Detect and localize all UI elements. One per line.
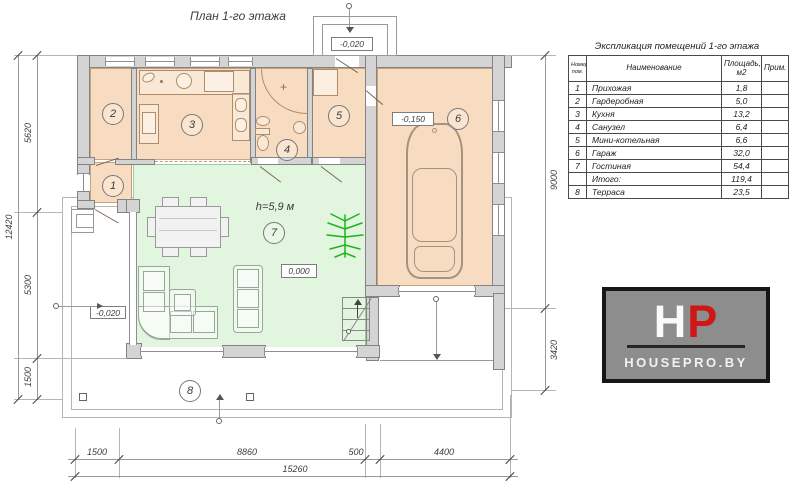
driveway-arrow-line (436, 300, 437, 355)
cell-area: 6,4 (722, 121, 762, 134)
dim-label: 8860 (187, 447, 307, 457)
cell-name: Терраса (587, 186, 722, 199)
room-number: 5 (336, 110, 342, 122)
cell-note (762, 186, 789, 199)
level-label-garage: -0,150 (392, 112, 434, 126)
armchair-seat (174, 294, 191, 311)
cell-name: Санузел (587, 121, 722, 134)
stairs-arrow-up (354, 299, 362, 305)
shower-drain-mark: + (280, 80, 287, 94)
dim-label: 1500 (23, 354, 33, 400)
dim-label: 1500 (75, 447, 119, 457)
col-header-area: Площадь, м2 (722, 56, 762, 82)
room-number: 8 (187, 385, 193, 397)
cell-name: Итого: (587, 173, 722, 186)
chair (162, 247, 179, 257)
room-circle-6: 6 (447, 108, 469, 130)
side-arrow-right (97, 303, 103, 309)
table-row: 3Кухня13,2 (569, 108, 789, 121)
stairs (342, 297, 370, 341)
cell-area: 23,5 (722, 186, 762, 199)
chair (147, 217, 156, 237)
extension-line (505, 55, 556, 56)
dim-line-left-total (18, 55, 19, 399)
wall-partition (131, 68, 137, 163)
kitchen-oven (142, 112, 156, 134)
window-wall (129, 212, 137, 345)
room-circle-5: 5 (328, 105, 350, 127)
dim-label: 3420 (549, 327, 559, 373)
room-number: 4 (284, 144, 290, 156)
cell-note (762, 121, 789, 134)
extension-line (119, 428, 120, 478)
chair (190, 197, 207, 207)
window (105, 57, 135, 66)
wall-segment (77, 157, 95, 165)
window-wall (140, 347, 224, 356)
cell-area: 54,4 (722, 160, 762, 173)
cell-num: 7 (569, 160, 587, 173)
room-circle-1: 1 (102, 175, 124, 197)
table-row-total: Итого:119,4 (569, 173, 789, 186)
table-grain (159, 230, 217, 231)
cell-num: 4 (569, 121, 587, 134)
room-number: 2 (110, 108, 116, 120)
car-rear-window (414, 246, 455, 272)
wall-segment (77, 200, 95, 209)
room-number: 6 (455, 113, 461, 125)
toilet-tank (255, 128, 270, 135)
cell-name: Гардеробная (587, 95, 722, 108)
dim-label-total: 15260 (250, 464, 340, 474)
cell-name: Гостиная (587, 160, 722, 173)
garage-gate (398, 287, 476, 295)
table-row: 6Гараж32,0 (569, 147, 789, 160)
extension-line (505, 308, 556, 309)
sofa-cushion (143, 292, 165, 312)
table-title: Экспликация помещений 1-го этажа (560, 42, 794, 52)
room-circle-8: 8 (179, 380, 201, 402)
room-circle-7: 7 (263, 222, 285, 244)
car-cabin (412, 168, 457, 242)
dim-label-total: 12420 (4, 204, 14, 250)
room-number: 7 (271, 227, 277, 239)
explication-table: Номер пом. Наименование Площадь, м2 Прим… (568, 55, 789, 199)
dining-table (155, 206, 221, 248)
round-sink (293, 121, 306, 134)
room-number: 3 (189, 119, 195, 131)
window (493, 100, 504, 132)
wall-segment (115, 159, 155, 165)
housepro-logo: HP HOUSEPRO.BY (602, 287, 770, 383)
table-header-row: Номер пом. Наименование Площадь, м2 Прим… (569, 56, 789, 82)
table-row: 7Гостиная54,4 (569, 160, 789, 173)
kitchen-knob (160, 80, 163, 83)
sofa-cushion (237, 289, 259, 308)
wall-pier (222, 345, 266, 358)
sink-bowl (235, 118, 247, 132)
window (228, 57, 253, 66)
kitchen-sink (176, 73, 192, 89)
cell-note (762, 160, 789, 173)
page-title: План 1-го этажа (170, 11, 306, 21)
sofa-cushion (237, 269, 259, 288)
cell-num: 8 (569, 186, 587, 199)
dim-label: 500 (335, 447, 377, 457)
table-row: 4Санузел6,4 (569, 121, 789, 134)
dim-line-left (37, 55, 38, 399)
sink-bowl (235, 98, 247, 112)
cell-num: 6 (569, 147, 587, 160)
window (493, 204, 504, 236)
extension-line (380, 424, 381, 478)
cell-area: 13,2 (722, 108, 762, 121)
extension-line (512, 390, 556, 391)
door-opening (319, 158, 340, 164)
col-header-name: Наименование (587, 56, 722, 82)
room-circle-3: 3 (181, 114, 203, 136)
terrace-marker-dot (216, 418, 222, 424)
open-plan-boundary (155, 161, 251, 162)
cell-note (762, 173, 789, 186)
table-row: 2Гардеробная5,0 (569, 95, 789, 108)
entry-arrow-line (349, 9, 350, 28)
terrace-arrow-up (216, 394, 224, 400)
room-circle-2: 2 (102, 103, 124, 125)
driveway (377, 293, 505, 362)
sofa-cushion (237, 309, 259, 328)
side-arrow-line (58, 306, 98, 307)
cell-area: 32,0 (722, 147, 762, 160)
cell-note (762, 95, 789, 108)
table-row: 1Прихожая1,8 (569, 82, 789, 95)
dim-label: 5620 (23, 110, 33, 156)
cell-name: Гараж (587, 147, 722, 160)
driveway-marker-dot (433, 296, 439, 302)
entry-steps (76, 214, 94, 228)
table-row: 5Мини-котельная6,6 (569, 134, 789, 147)
cell-note (762, 108, 789, 121)
extension-line (510, 395, 511, 478)
wall-partition (250, 68, 256, 163)
chair (190, 247, 207, 257)
wall-pier (126, 199, 140, 213)
ceiling-height-label: h=5,9 м (243, 202, 307, 212)
driveway-edge (380, 360, 493, 361)
wall-pier (356, 345, 380, 358)
dim-line-right (545, 55, 546, 390)
floor-plan-drawing: План 1-го этажа (0, 0, 800, 491)
cell-num (569, 173, 587, 186)
stairs-start-dot (346, 329, 351, 334)
window-wall (264, 347, 358, 356)
cell-area: 119,4 (722, 173, 762, 186)
side-marker-dot (53, 303, 59, 309)
chair (220, 217, 229, 237)
cell-num: 3 (569, 108, 587, 121)
col-header-note: Прим. (762, 56, 789, 82)
entry-arrow-down (346, 27, 354, 33)
logo-letter-p: P (687, 296, 718, 347)
wash-basin (256, 116, 270, 126)
cell-area: 6,6 (722, 134, 762, 147)
dim-line-bottom (68, 459, 518, 460)
col-header-num: Номер пом. (569, 56, 587, 82)
dim-line-bottom-total (68, 476, 518, 477)
cell-note (762, 147, 789, 160)
cell-name: Прихожая (587, 82, 722, 95)
sofa-cushion (143, 271, 165, 291)
logo-letters: HP (654, 300, 719, 344)
logo-site-text: HOUSEPRO.BY (624, 355, 748, 370)
open-plan-boundary (131, 165, 132, 203)
terrace-column (79, 393, 87, 401)
cell-num: 1 (569, 82, 587, 95)
chair (162, 197, 179, 207)
driveway-arrow-down (433, 354, 441, 360)
wall-segment (365, 285, 400, 297)
extension-line (14, 55, 77, 56)
table-grain (159, 218, 217, 219)
cell-area: 1,8 (722, 82, 762, 95)
cell-name: Мини-котельная (587, 134, 722, 147)
driveway-wall-right (493, 293, 505, 370)
cell-num: 5 (569, 134, 587, 147)
cell-num: 2 (569, 95, 587, 108)
window (78, 173, 89, 193)
window (190, 57, 220, 66)
table-row: 8Терраса23,5 (569, 186, 789, 199)
car-emblem (432, 128, 437, 133)
toilet-bowl (257, 135, 269, 151)
room-number: 1 (110, 180, 116, 192)
boiler-unit (313, 69, 338, 96)
door-opening (258, 158, 278, 164)
sofa-cushion (193, 311, 215, 333)
cell-area: 5,0 (722, 95, 762, 108)
window (493, 152, 504, 184)
cell-note (762, 82, 789, 95)
room-circle-4: 4 (276, 139, 298, 161)
dim-label: 5300 (23, 262, 33, 308)
terrace-arrow-line (219, 400, 220, 419)
dim-label: 4400 (400, 447, 488, 457)
cell-name: Кухня (587, 108, 722, 121)
dim-label: 9000 (549, 157, 559, 203)
wall-top (77, 55, 512, 68)
kitchen-stove (204, 71, 234, 92)
level-label-living: 0,000 (281, 264, 317, 278)
logo-letter-h: H (654, 296, 688, 347)
logo-rule (627, 345, 745, 348)
level-label-entry: -0,020 (331, 37, 373, 51)
window (145, 57, 175, 66)
plant-icon (325, 211, 365, 259)
terrace-column (246, 393, 254, 401)
cell-note (762, 134, 789, 147)
level-label-terrace: -0,020 (90, 306, 126, 319)
